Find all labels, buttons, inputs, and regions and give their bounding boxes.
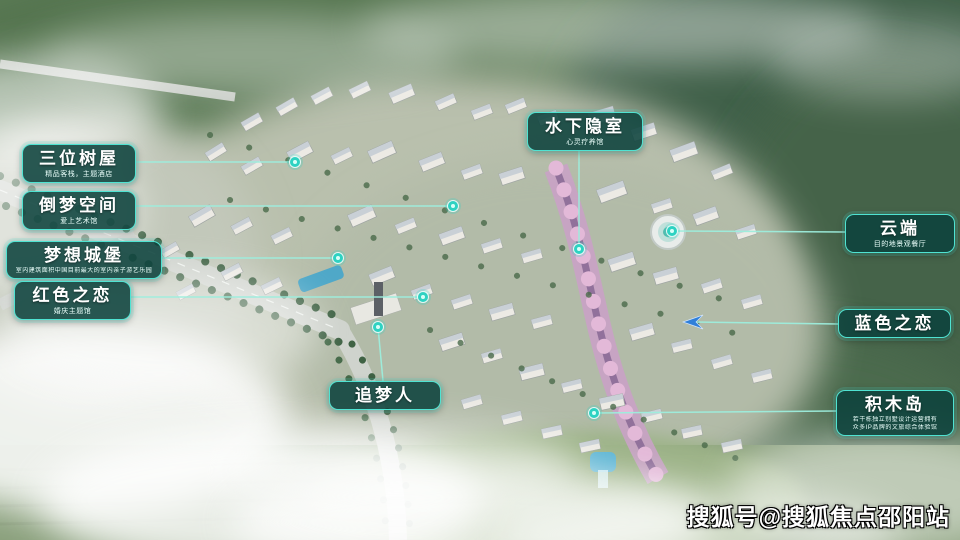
callout-shuixia-yinshi: 水下隐室 心灵疗养馆 (527, 112, 643, 151)
callout-subtitle-line2: 众多IP品牌的文旅综合体验馆 (843, 424, 947, 432)
callout-lanse-zhilian: 蓝色之恋 (838, 309, 951, 338)
callout-subtitle: 室内建筑面积中国目前最大的室内亲子游艺乐园 (13, 267, 155, 275)
callout-mengxiang-chengbao: 梦想城堡 室内建筑面积中国目前最大的室内亲子游艺乐园 (6, 241, 162, 279)
callout-title: 倒梦空间 (29, 196, 129, 216)
water-feature (590, 452, 616, 472)
callout-subtitle: 心灵疗养馆 (534, 138, 636, 147)
callout-daomeng-kongjian: 倒梦空间 爱上艺术馆 (22, 191, 136, 230)
callout-zhuimengren: 追梦人 (329, 381, 441, 410)
callout-title: 梦想城堡 (13, 246, 155, 266)
callout-sanwei-shuwu: 三位树屋 精品客栈，主题酒店 (22, 144, 136, 183)
callout-subtitle: 精品客栈，主题酒店 (29, 170, 129, 179)
callout-yunduan: 云端 目的地景观餐厅 (845, 214, 955, 253)
callout-title: 追梦人 (336, 386, 434, 406)
callout-title: 三位树屋 (29, 149, 129, 169)
callout-title: 云端 (852, 219, 948, 239)
sohu-watermark: 搜狐号@搜狐焦点邵阳站 (687, 498, 950, 532)
callout-title: 水下隐室 (534, 117, 636, 137)
callout-title: 蓝色之恋 (845, 314, 944, 334)
callout-hongse-zhilian: 红色之恋 婚庆主题馆 (14, 281, 131, 320)
callout-subtitle: 婚庆主题馆 (21, 307, 124, 316)
callout-jimu-dao: 积木岛 若干栋独立别墅设计运营拥有 众多IP品牌的文旅综合体验馆 (836, 390, 954, 436)
callout-title: 红色之恋 (21, 286, 124, 306)
callout-subtitle: 目的地景观餐厅 (852, 240, 948, 249)
masterplan-scene: 三位树屋 精品客栈，主题酒店 倒梦空间 爱上艺术馆 梦想城堡 室内建筑面积中国目… (0, 0, 960, 540)
circular-plaza (651, 215, 685, 249)
callout-title: 积木岛 (843, 395, 947, 415)
callout-subtitle: 爱上艺术馆 (29, 217, 129, 226)
callout-subtitle: 若干栋独立别墅设计运营拥有 (843, 416, 947, 424)
tower (374, 282, 383, 316)
